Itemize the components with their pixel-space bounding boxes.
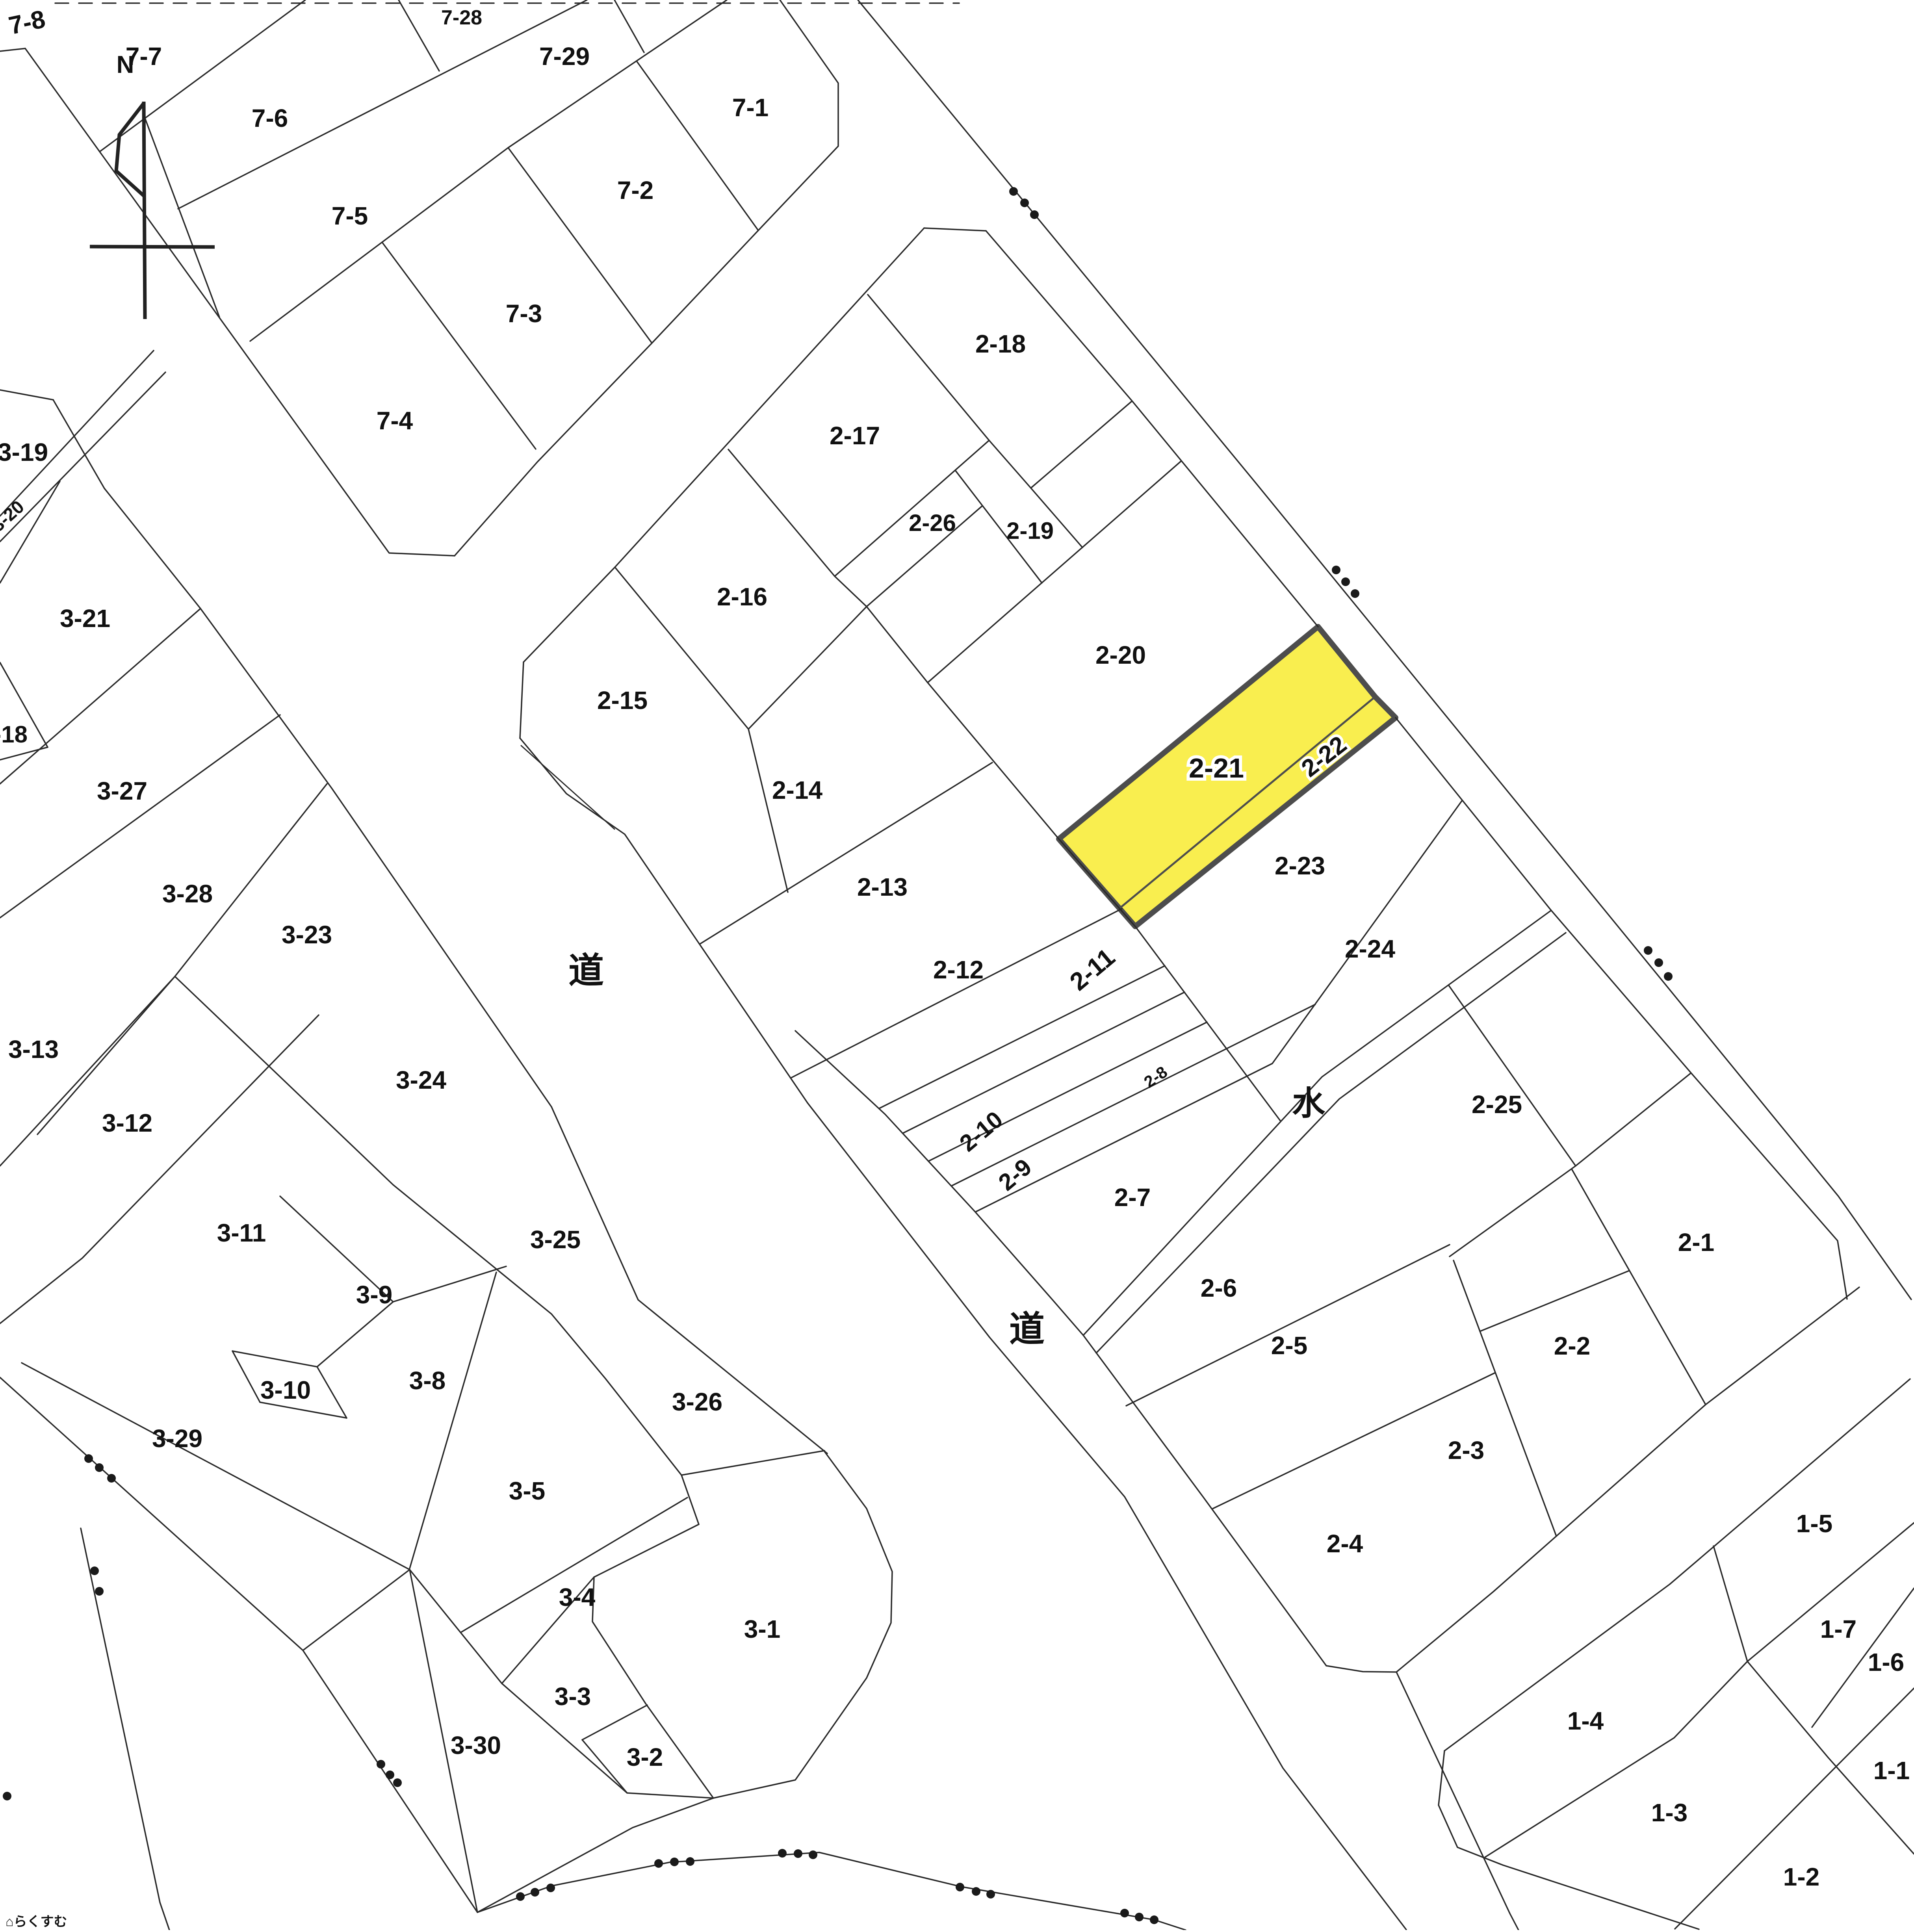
svg-text:2-19: 2-19: [1006, 518, 1054, 544]
svg-text:3-27: 3-27: [97, 777, 147, 805]
svg-text:道: 道: [568, 951, 604, 991]
svg-text:3-5: 3-5: [509, 1477, 546, 1505]
svg-text:3-9: 3-9: [356, 1281, 393, 1309]
svg-text:2-24: 2-24: [1345, 935, 1396, 963]
svg-text:1-1: 1-1: [1873, 1756, 1910, 1785]
svg-text:道: 道: [1009, 1310, 1045, 1349]
svg-text:1-4: 1-4: [1567, 1707, 1604, 1735]
svg-text:7-7: 7-7: [126, 42, 162, 71]
svg-text:3-3: 3-3: [555, 1682, 591, 1711]
svg-text:3-24: 3-24: [396, 1066, 447, 1094]
svg-text:7-2: 7-2: [617, 176, 654, 204]
svg-text:2-1: 2-1: [1678, 1228, 1715, 1256]
svg-text:2-14: 2-14: [772, 776, 823, 804]
svg-text:3-18: 3-18: [0, 721, 28, 748]
svg-text:2-3: 2-3: [1448, 1436, 1485, 1464]
svg-text:2-4: 2-4: [1327, 1529, 1363, 1558]
svg-text:3-25: 3-25: [530, 1225, 581, 1254]
svg-text:2-6: 2-6: [1201, 1274, 1237, 1302]
svg-text:3-4: 3-4: [559, 1583, 596, 1611]
svg-text:1-2: 1-2: [1783, 1863, 1820, 1891]
svg-text:1-7: 1-7: [1820, 1615, 1857, 1643]
svg-text:3-10: 3-10: [260, 1376, 311, 1404]
svg-text:3-26: 3-26: [672, 1388, 722, 1416]
svg-text:2-5: 2-5: [1271, 1331, 1308, 1360]
svg-text:2-23: 2-23: [1275, 852, 1325, 880]
svg-text:水: 水: [1292, 1085, 1326, 1122]
svg-text:2-16: 2-16: [717, 583, 767, 611]
svg-text:2-7: 2-7: [1114, 1183, 1151, 1212]
svg-text:7-1: 7-1: [732, 93, 769, 122]
svg-text:3-30: 3-30: [451, 1731, 501, 1759]
svg-text:3-19: 3-19: [0, 438, 48, 466]
svg-text:2-25: 2-25: [1472, 1090, 1522, 1119]
svg-text:2-12: 2-12: [933, 956, 984, 984]
svg-text:⌂らくすむ: ⌂らくすむ: [6, 1914, 67, 1929]
svg-text:7-6: 7-6: [252, 104, 288, 132]
svg-text:2-21: 2-21: [1189, 753, 1244, 783]
svg-text:2-15: 2-15: [597, 686, 648, 715]
svg-text:1-3: 1-3: [1651, 1798, 1688, 1827]
svg-text:2-13: 2-13: [857, 873, 908, 901]
svg-text:7-29: 7-29: [539, 42, 590, 71]
svg-text:3-12: 3-12: [102, 1109, 152, 1137]
svg-text:3-11: 3-11: [217, 1219, 266, 1247]
svg-text:1-6: 1-6: [1868, 1648, 1905, 1676]
svg-text:7-5: 7-5: [332, 202, 368, 230]
svg-text:3-28: 3-28: [162, 880, 213, 908]
svg-text:2-17: 2-17: [830, 421, 880, 450]
svg-text:7-3: 7-3: [506, 299, 542, 328]
svg-text:3-2: 3-2: [627, 1743, 663, 1771]
svg-text:3-21: 3-21: [60, 604, 110, 633]
svg-text:3-23: 3-23: [282, 921, 332, 949]
svg-text:2-2: 2-2: [1554, 1332, 1591, 1360]
svg-text:1-5: 1-5: [1796, 1509, 1833, 1538]
svg-text:2-20: 2-20: [1095, 641, 1146, 669]
svg-text:2-26: 2-26: [909, 510, 956, 536]
svg-text:2-18: 2-18: [975, 330, 1026, 358]
svg-text:3-13: 3-13: [8, 1035, 59, 1063]
svg-text:3-1: 3-1: [744, 1615, 781, 1643]
svg-text:3-29: 3-29: [152, 1424, 202, 1453]
svg-text:3-8: 3-8: [409, 1366, 446, 1395]
svg-text:7-4: 7-4: [377, 406, 413, 435]
svg-text:7-28: 7-28: [441, 6, 482, 29]
